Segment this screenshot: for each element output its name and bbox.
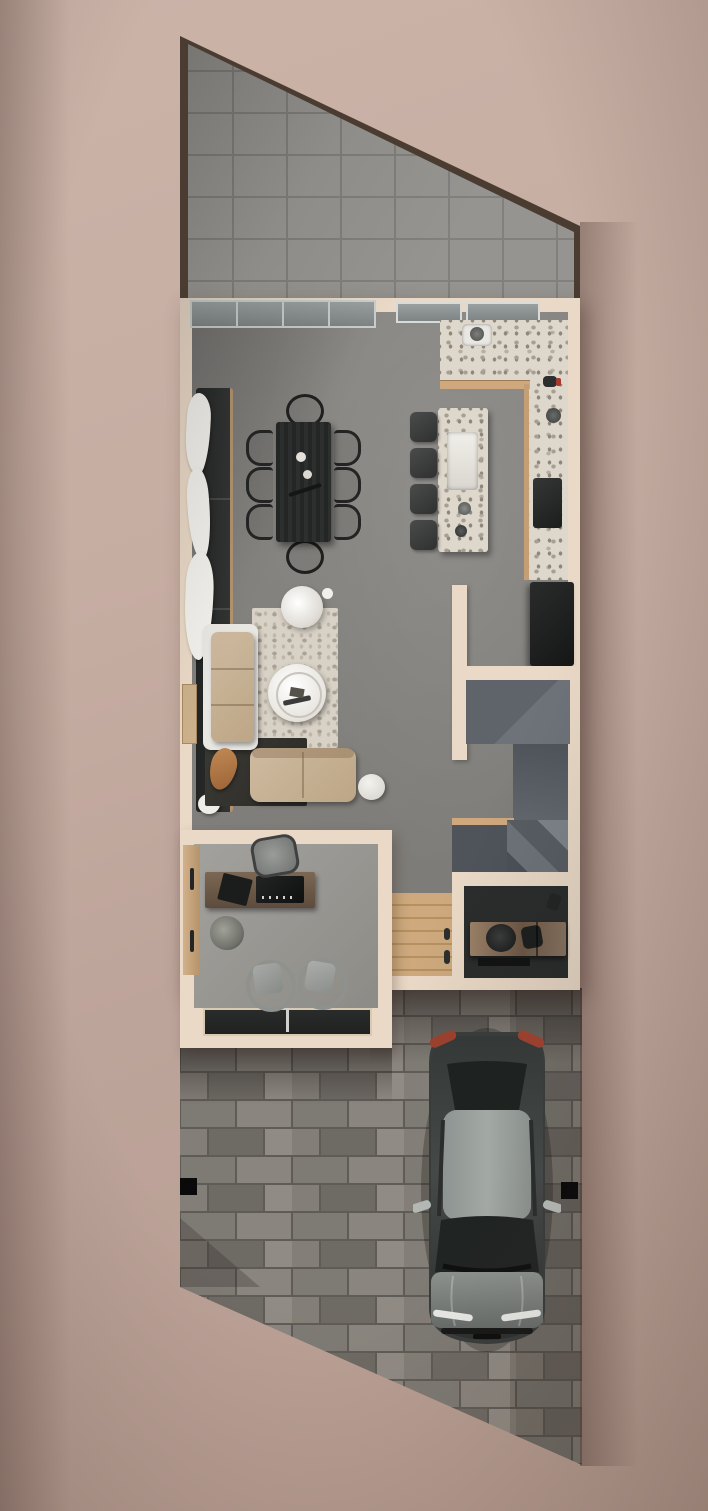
office-door-wardrobe-fix (183, 845, 200, 975)
sliding-door-panel (238, 302, 284, 326)
backyard-patio (178, 28, 582, 300)
bar-stool-4 (410, 520, 437, 550)
island-sink (447, 432, 478, 490)
entry-door-handles-2 (444, 928, 450, 940)
bottom-wall-entry (392, 976, 458, 990)
patio-shading (178, 28, 582, 300)
red-accent-item (556, 378, 561, 386)
dining-chair-right-2 (334, 467, 361, 503)
dining-table (276, 422, 331, 542)
loveseat-backrest (252, 748, 354, 758)
console-bag (520, 924, 544, 949)
counter-wood-trim-vertical (524, 384, 529, 580)
gate-post-right (561, 1182, 578, 1199)
kettle (543, 376, 557, 387)
sofa-vertical (211, 632, 254, 742)
left-edge-vignette (0, 0, 70, 1511)
floor-plan-render (0, 0, 708, 1511)
office-glazing-mullion (286, 1008, 289, 1032)
console-seam (536, 922, 538, 956)
bar-stool-1 (410, 412, 437, 442)
table-dish-2 (303, 470, 312, 479)
island-drain (455, 525, 467, 537)
entry-door-handles (444, 950, 450, 964)
dining-chair-right-3 (334, 504, 361, 540)
guest-chair-2-seat (304, 960, 337, 994)
loveseat-seam (302, 752, 304, 798)
house-cast-shadow-right (580, 222, 638, 1466)
cooktop (533, 478, 562, 528)
mudroom-mat (478, 958, 530, 966)
wall-shelf (182, 684, 197, 744)
sliding-door-panel (330, 302, 374, 326)
sofa-cushion-seam-2 (211, 704, 254, 706)
partition-wall-horizontal (465, 666, 580, 680)
office-shadow-on-bricks (180, 1045, 392, 1105)
dining-chair-right-1 (334, 430, 361, 466)
dining-chair-left-1 (246, 430, 273, 466)
counter-wood-trim (440, 380, 530, 389)
door-handle-2 (190, 930, 194, 952)
grille (473, 1334, 501, 1339)
office-plant (210, 916, 244, 950)
console-gear-helmet (486, 924, 516, 952)
floor-lamp (281, 586, 323, 628)
sliding-glass-door (190, 300, 376, 328)
counter-bowl (546, 408, 561, 423)
door-handle-1 (190, 868, 194, 890)
stairs-mid-landing (513, 744, 568, 822)
hood (431, 1272, 543, 1328)
rear-window (447, 1061, 527, 1113)
front-bumper-line (441, 1328, 533, 1334)
dining-end-chair-bottom (286, 540, 324, 574)
desk-pad-dots (262, 896, 296, 899)
sliding-door-panel (284, 302, 330, 326)
pouf (358, 774, 385, 800)
mudroom-console (470, 922, 566, 956)
sliding-door-panel (192, 302, 238, 326)
stairs-wood-threshold (452, 818, 514, 825)
sofa-cushion-seam-1 (211, 668, 254, 670)
refrigerator (530, 582, 574, 666)
table-dish-1 (296, 452, 306, 462)
dining-chair-left-2 (246, 467, 273, 503)
stairs-upper-flight (466, 680, 570, 744)
dining-chair-left-3 (246, 504, 273, 540)
bar-stool-2 (410, 448, 437, 478)
car (413, 1020, 561, 1354)
kitchen-counter-top-run (440, 320, 568, 384)
roof-sheen (443, 1110, 531, 1220)
gate-post-left (180, 1178, 197, 1195)
guest-chair-1-seat (252, 962, 284, 996)
bar-stool-3 (410, 484, 437, 514)
lamp-ball (322, 588, 333, 599)
counter-sink-basin (470, 327, 484, 341)
island-faucet (458, 502, 471, 515)
